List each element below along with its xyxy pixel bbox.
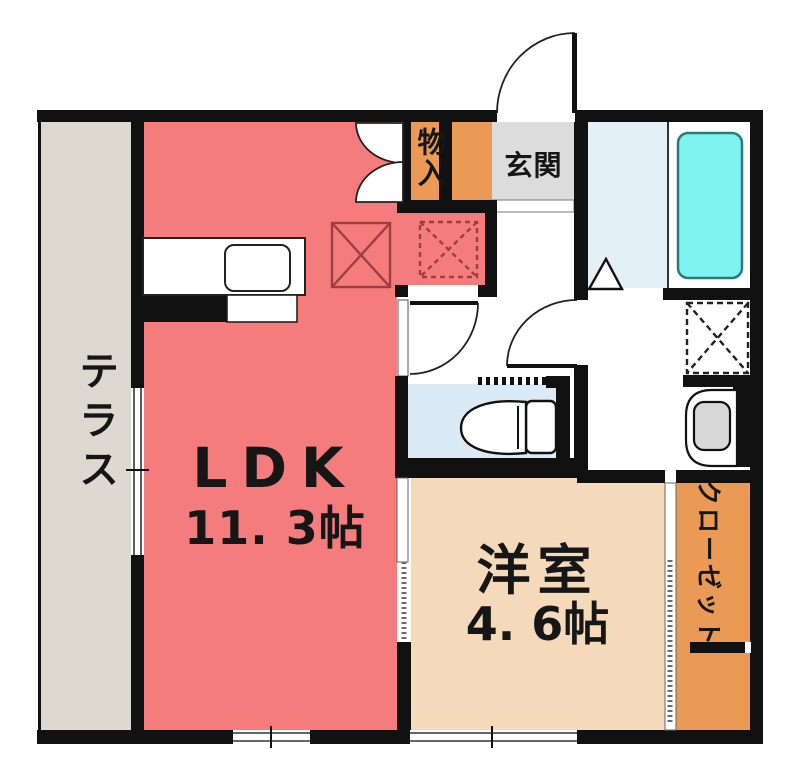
wall-bathroom-corner [574, 288, 588, 300]
ldk-label: LDK [150, 436, 400, 500]
toilet [461, 401, 556, 454]
wall-right [750, 110, 763, 744]
kitchen-sink [225, 245, 290, 291]
entrance-door-arc [497, 33, 575, 113]
ldk-hall-door-arc [410, 303, 478, 374]
wall-bathroom-bottom [663, 288, 750, 300]
wall-nook-right [485, 200, 497, 297]
entrance-step [492, 200, 574, 212]
shoe-cabinet [452, 122, 492, 200]
wall-top-right [575, 110, 763, 122]
terrace-edge-line [38, 122, 41, 730]
wall-nook-top [397, 200, 497, 213]
window-western-south [410, 730, 577, 744]
wall-washroom-bottom [577, 470, 665, 483]
wall-nook-bottom-l [395, 285, 408, 297]
wall-bottom [37, 730, 763, 744]
ldk-hall-door-frame [398, 300, 408, 376]
entrance-door-leaf [572, 33, 577, 113]
wall-toilet-bottom [395, 458, 577, 478]
bathroom-floor [588, 122, 668, 288]
storage-label: 物入 [409, 127, 451, 189]
washroom-door-arc [507, 300, 577, 366]
closet-divider-gap [745, 642, 751, 653]
ldk-floor [144, 122, 397, 730]
terrace-label: テラス [66, 350, 124, 497]
washing-machine-pan [687, 303, 748, 373]
kitchen-base-wall [133, 295, 227, 322]
wall-top-left [37, 110, 497, 122]
ldk-size-label: 11. 3帖 [140, 492, 410, 558]
western-room-size-label: 4. 6帖 [425, 588, 650, 654]
entrance-door-opening [497, 110, 575, 122]
wall-toilet-right [556, 376, 570, 470]
kitchen-counter-return [227, 295, 297, 322]
entrance-label: 玄関 [492, 144, 575, 184]
wall-western-left [397, 642, 411, 730]
wall-entrance-bath [574, 110, 588, 300]
closet-label: クローゼット [692, 480, 728, 732]
wall-basin-top [683, 375, 750, 387]
washbasin [686, 390, 737, 466]
wall-nook-bottom-r [478, 285, 497, 297]
ldk-nook-floor [397, 213, 485, 285]
wall-washroom-left [574, 365, 588, 470]
bathtub [678, 133, 742, 278]
floor-plan-canvas: テラス LDK 11. 3帖 物入 玄関 洋室 4. 6帖 クローゼット [0, 0, 800, 780]
